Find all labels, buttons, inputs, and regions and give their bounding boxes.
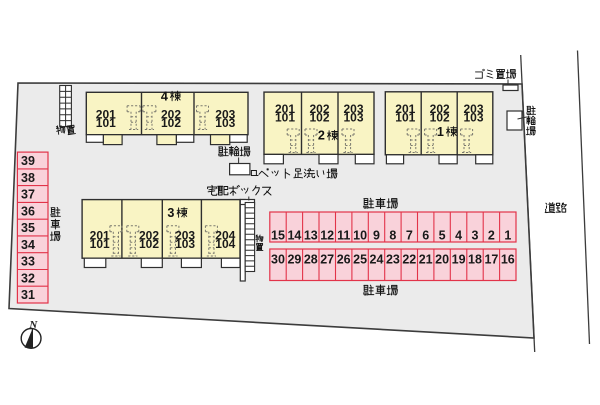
svg-text:101: 101 xyxy=(395,110,415,124)
svg-text:102: 102 xyxy=(139,237,159,251)
svg-text:33: 33 xyxy=(21,255,35,269)
svg-text:9: 9 xyxy=(373,229,380,243)
svg-text:10: 10 xyxy=(353,229,367,243)
svg-text:103: 103 xyxy=(175,237,195,251)
svg-text:23: 23 xyxy=(386,253,400,267)
svg-text:1: 1 xyxy=(504,229,511,243)
svg-text:7: 7 xyxy=(406,229,413,243)
svg-text:4: 4 xyxy=(161,89,168,103)
svg-text:34: 34 xyxy=(21,238,35,252)
svg-text:17: 17 xyxy=(484,253,498,267)
svg-text:38: 38 xyxy=(21,171,35,185)
svg-text:1: 1 xyxy=(437,125,444,139)
svg-text:29: 29 xyxy=(287,253,301,267)
svg-text:101: 101 xyxy=(275,110,295,124)
svg-text:101: 101 xyxy=(90,237,110,251)
svg-text:16: 16 xyxy=(501,253,515,267)
svg-text:101: 101 xyxy=(96,116,116,130)
svg-text:6: 6 xyxy=(422,229,429,243)
svg-text:N: N xyxy=(28,319,38,331)
svg-text:24: 24 xyxy=(370,253,384,267)
svg-text:14: 14 xyxy=(287,229,301,243)
svg-text:104: 104 xyxy=(215,237,235,251)
svg-text:39: 39 xyxy=(21,154,35,168)
svg-text:15: 15 xyxy=(271,229,285,243)
svg-text:12: 12 xyxy=(320,229,334,243)
svg-text:22: 22 xyxy=(402,253,416,267)
svg-text:102: 102 xyxy=(161,116,181,130)
svg-text:2: 2 xyxy=(488,229,495,243)
svg-text:30: 30 xyxy=(271,253,285,267)
svg-text:36: 36 xyxy=(21,204,35,218)
svg-text:31: 31 xyxy=(21,288,35,302)
svg-text:28: 28 xyxy=(304,253,318,267)
svg-text:103: 103 xyxy=(463,110,483,124)
svg-text:102: 102 xyxy=(309,110,329,124)
svg-text:27: 27 xyxy=(320,253,334,267)
svg-text:19: 19 xyxy=(452,253,466,267)
svg-text:3: 3 xyxy=(472,229,479,243)
svg-text:32: 32 xyxy=(21,271,35,285)
svg-text:35: 35 xyxy=(21,221,35,235)
svg-text:18: 18 xyxy=(468,253,482,267)
svg-text:11: 11 xyxy=(337,229,350,243)
svg-text:25: 25 xyxy=(353,253,367,267)
svg-text:21: 21 xyxy=(419,253,433,267)
svg-text:13: 13 xyxy=(304,229,318,243)
svg-text:20: 20 xyxy=(435,253,449,267)
svg-text:102: 102 xyxy=(430,110,450,124)
svg-text:2: 2 xyxy=(318,129,325,143)
svg-text:4: 4 xyxy=(455,229,462,243)
svg-text:8: 8 xyxy=(389,229,396,243)
svg-text:5: 5 xyxy=(439,229,446,243)
svg-text:103: 103 xyxy=(215,116,235,130)
svg-text:37: 37 xyxy=(21,188,35,202)
svg-text:3: 3 xyxy=(167,206,174,220)
svg-text:26: 26 xyxy=(337,253,351,267)
svg-text:103: 103 xyxy=(343,110,363,124)
